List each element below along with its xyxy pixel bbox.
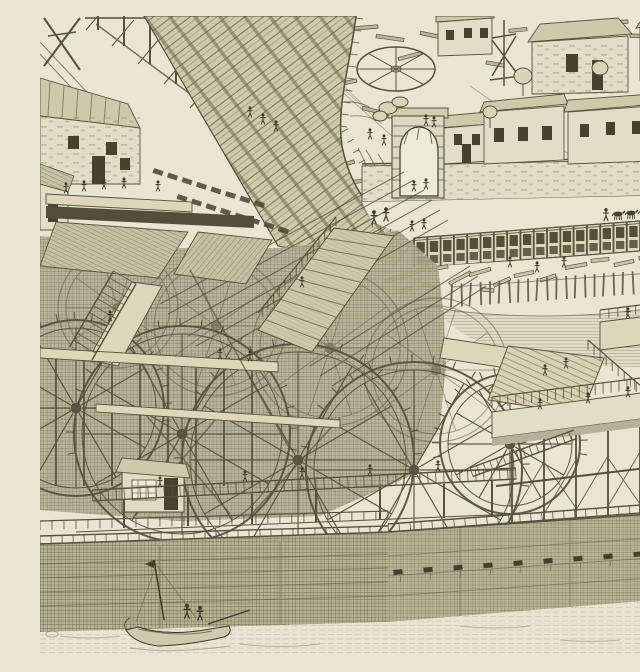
house-row-left xyxy=(480,94,568,164)
engraving-canvas xyxy=(40,16,640,656)
big-stone-house xyxy=(528,18,632,94)
top-edge-house xyxy=(436,16,494,56)
house-row-right xyxy=(564,92,640,164)
engraving-marly-machine: Bird's-eye engraving of the Machine de M… xyxy=(40,16,640,656)
